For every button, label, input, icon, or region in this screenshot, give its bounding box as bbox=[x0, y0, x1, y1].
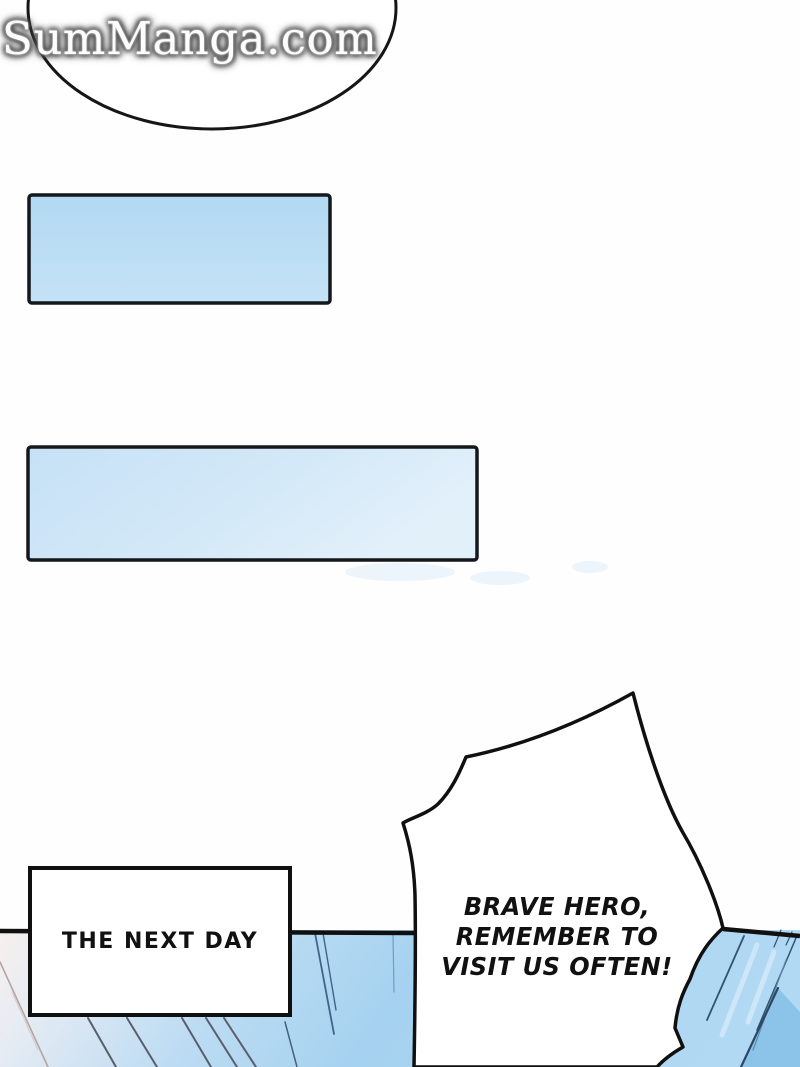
site-watermark: SumManga.com bbox=[2, 14, 382, 64]
caption-box: THE NEXT DAY bbox=[28, 866, 292, 1017]
speech-bubble-text: BRAVE HERO, REMEMBER TO VISIT US OFTEN! bbox=[418, 892, 696, 982]
blue-panel-1 bbox=[29, 195, 330, 303]
speech-line-3: VISIT US OFTEN! bbox=[418, 952, 696, 982]
caption-text: THE NEXT DAY bbox=[62, 929, 258, 954]
manga-page: SumManga.com THE NEXT DAY BRAVE HERO, RE… bbox=[0, 0, 800, 1067]
blue-panel-2 bbox=[28, 447, 477, 560]
speech-line-2: REMEMBER TO bbox=[418, 922, 696, 952]
panel-smudges bbox=[345, 561, 608, 585]
speech-bubble-shape bbox=[403, 693, 723, 1067]
speech-line-1: BRAVE HERO, bbox=[418, 892, 696, 922]
